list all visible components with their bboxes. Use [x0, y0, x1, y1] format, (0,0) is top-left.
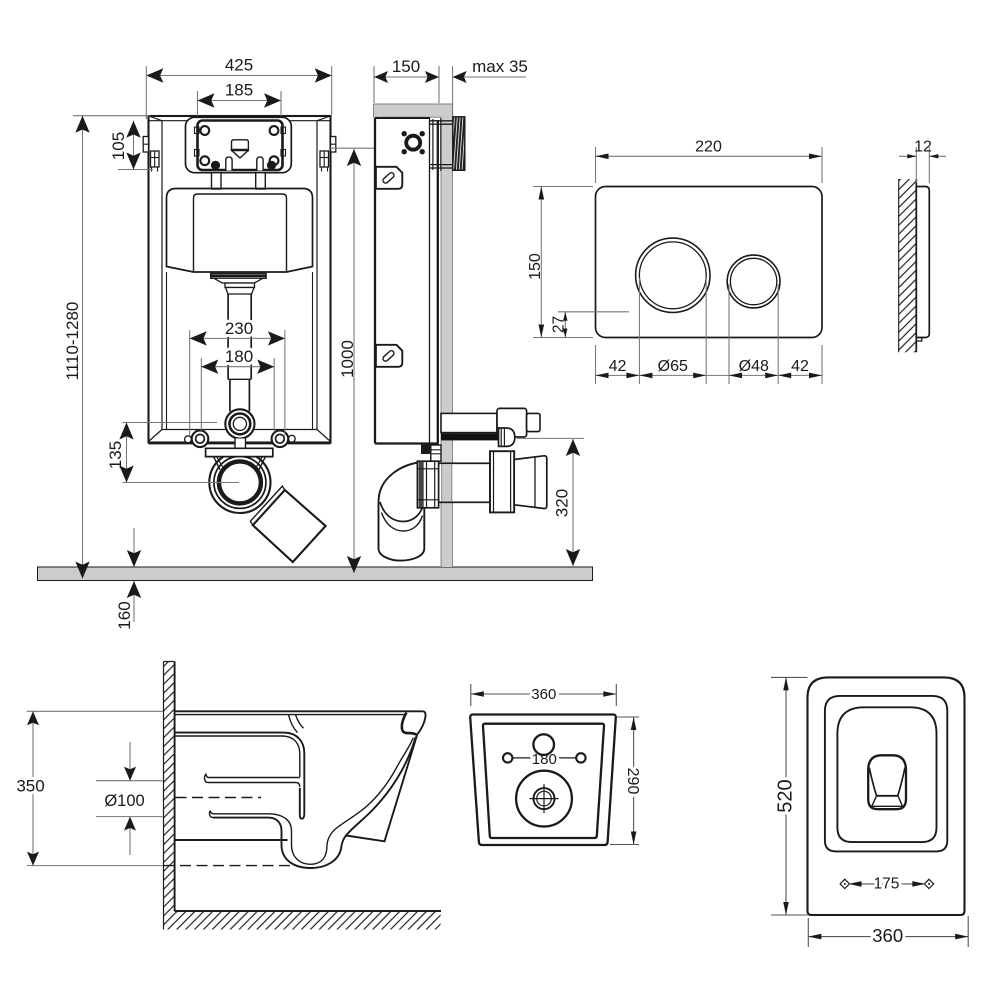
svg-text:360: 360 — [872, 925, 903, 946]
svg-text:160: 160 — [115, 601, 134, 629]
svg-text:520: 520 — [775, 779, 797, 812]
svg-text:135: 135 — [106, 441, 125, 469]
svg-text:Ø48: Ø48 — [739, 358, 769, 375]
svg-text:max 35: max 35 — [472, 57, 528, 76]
svg-text:290: 290 — [624, 768, 641, 795]
svg-text:180: 180 — [225, 347, 253, 366]
svg-text:360: 360 — [531, 686, 556, 703]
svg-text:175: 175 — [874, 875, 900, 892]
svg-text:425: 425 — [225, 56, 253, 75]
svg-text:320: 320 — [553, 489, 572, 517]
svg-text:42: 42 — [609, 358, 627, 375]
svg-text:150: 150 — [527, 253, 544, 280]
svg-text:1000: 1000 — [338, 340, 357, 378]
svg-text:Ø100: Ø100 — [104, 792, 144, 810]
svg-text:27: 27 — [551, 316, 568, 333]
svg-text:Ø65: Ø65 — [658, 358, 688, 375]
svg-text:42: 42 — [791, 358, 809, 375]
svg-text:350: 350 — [16, 777, 44, 796]
svg-text:12: 12 — [914, 138, 932, 155]
svg-text:150: 150 — [392, 57, 420, 76]
svg-text:185: 185 — [225, 81, 253, 100]
svg-text:105: 105 — [109, 132, 128, 160]
svg-text:1110-1280: 1110-1280 — [63, 302, 82, 381]
svg-text:230: 230 — [225, 319, 253, 338]
svg-text:220: 220 — [695, 138, 722, 155]
